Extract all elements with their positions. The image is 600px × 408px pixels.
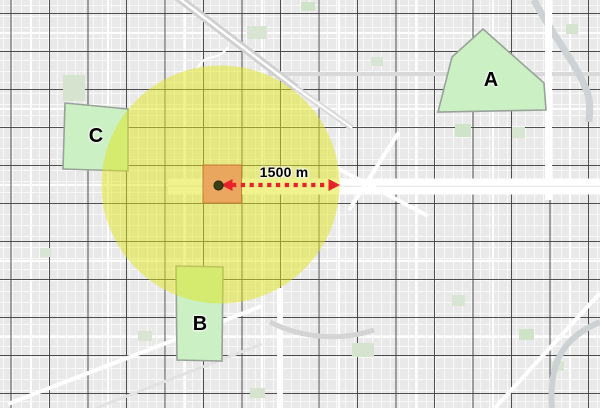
diagonal-road: [8, 306, 262, 404]
diagonal-road: [495, 293, 600, 408]
rail-ribbon-south: [270, 322, 374, 337]
park-patch: [566, 24, 578, 34]
park-patch: [301, 2, 315, 11]
park-patch: [250, 388, 265, 398]
distance-label: 1500 m: [260, 165, 309, 179]
river-ribbon-se: [551, 322, 600, 408]
park-patch: [138, 331, 152, 341]
map-canvas[interactable]: A B C 1500 m: [0, 0, 600, 408]
park-patch: [512, 127, 525, 138]
park-patch: [40, 248, 51, 257]
wide-street-vertical: [277, 288, 283, 408]
zone-label-b: B: [193, 314, 207, 334]
park-patch: [352, 343, 374, 357]
park-patch: [452, 295, 465, 306]
map-overlay-graphics: [0, 0, 600, 408]
center-point-marker[interactable]: [214, 181, 223, 190]
zone-label-a: A: [484, 70, 498, 90]
park-patch: [63, 75, 85, 101]
park-patch: [247, 26, 267, 39]
park-patch: [455, 124, 471, 137]
park-patch: [371, 57, 383, 66]
park-patch: [519, 329, 534, 340]
zone-label-c: C: [89, 126, 103, 146]
